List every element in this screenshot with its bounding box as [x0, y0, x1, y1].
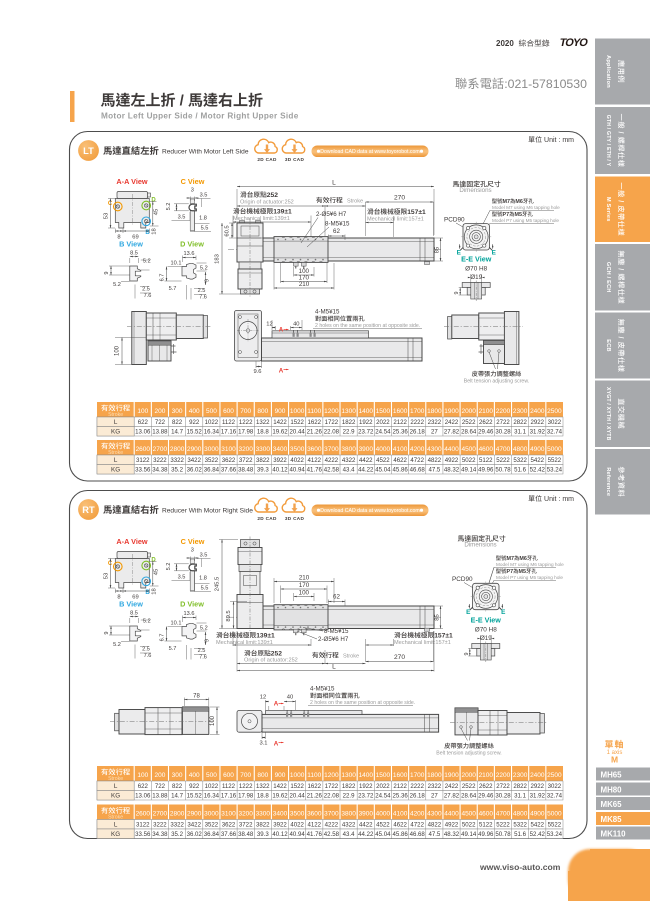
svg-text:21.26: 21.26	[307, 793, 323, 800]
svg-text:27: 27	[431, 793, 438, 800]
svg-text:33.56: 33.56	[135, 467, 151, 474]
svg-text:2422: 2422	[445, 783, 459, 790]
svg-text:/: /	[617, 334, 626, 342]
svg-text:3822: 3822	[256, 457, 270, 464]
svg-text:21.26: 21.26	[307, 429, 323, 436]
svg-text:1922: 1922	[359, 783, 373, 790]
svg-text:3: 3	[191, 188, 194, 194]
svg-text:35.2: 35.2	[171, 831, 183, 838]
svg-text:35.2: 35.2	[171, 467, 183, 474]
svg-text:1122: 1122	[222, 419, 236, 426]
svg-text:5.5: 5.5	[201, 226, 209, 232]
svg-text:5322: 5322	[513, 457, 527, 464]
svg-text:Ø70 H8: Ø70 H8	[475, 627, 497, 634]
svg-text:41.76: 41.76	[307, 831, 323, 838]
svg-text:100: 100	[137, 772, 148, 779]
svg-text:23.72: 23.72	[358, 429, 374, 436]
svg-text:7.6: 7.6	[199, 655, 207, 661]
svg-text:2900: 2900	[187, 446, 202, 453]
svg-text:1300: 1300	[341, 772, 356, 779]
svg-text:36.84: 36.84	[204, 831, 220, 838]
svg-text:183: 183	[215, 254, 221, 264]
svg-text:M: M	[611, 755, 618, 765]
svg-text:3.5: 3.5	[200, 553, 208, 559]
svg-text:45.86: 45.86	[392, 831, 408, 838]
svg-text:2922: 2922	[531, 419, 545, 426]
svg-text:2.5: 2.5	[198, 648, 206, 654]
svg-text:25.36: 25.36	[392, 793, 408, 800]
svg-text:2.5: 2.5	[142, 647, 150, 653]
svg-text:E: E	[501, 609, 506, 616]
svg-text:252: 252	[267, 192, 278, 199]
svg-text:39.3: 39.3	[257, 831, 269, 838]
svg-text:922: 922	[189, 419, 200, 426]
svg-text:Mechanical limit:157±1: Mechanical limit:157±1	[394, 640, 451, 646]
svg-text:49.96: 49.96	[478, 467, 494, 474]
svg-text:22.9: 22.9	[343, 429, 355, 436]
svg-text:40: 40	[287, 695, 293, 701]
svg-text:A-A View: A-A View	[116, 537, 148, 546]
svg-text:1822: 1822	[342, 783, 356, 790]
svg-text:1222: 1222	[239, 783, 253, 790]
svg-text:3700: 3700	[324, 446, 339, 453]
svg-text:38.48: 38.48	[238, 831, 254, 838]
svg-text:5522: 5522	[548, 822, 562, 829]
svg-text:4022: 4022	[290, 457, 304, 464]
svg-text:36.02: 36.02	[187, 467, 203, 474]
svg-text:270: 270	[394, 654, 405, 661]
svg-text:3400: 3400	[273, 446, 288, 453]
svg-text:3300: 3300	[256, 446, 271, 453]
svg-text:3522: 3522	[205, 457, 219, 464]
svg-text:51.6: 51.6	[514, 831, 526, 838]
svg-text:Model M7 using M6 tapping hole: Model M7 using M6 tapping hole	[492, 205, 560, 210]
svg-text:2400: 2400	[530, 408, 545, 415]
svg-text:1600: 1600	[393, 408, 408, 415]
svg-text:Dimensions: Dimensions	[464, 542, 496, 549]
svg-text:4122: 4122	[308, 822, 322, 829]
svg-text:3100: 3100	[221, 811, 236, 818]
svg-text:3522: 3522	[205, 822, 219, 829]
svg-text:4500: 4500	[461, 811, 476, 818]
svg-text:TOYO: TOYO	[558, 37, 589, 49]
svg-text:700: 700	[240, 408, 251, 415]
svg-text:17.98: 17.98	[238, 429, 254, 436]
svg-text:53: 53	[104, 573, 110, 579]
svg-text:2500: 2500	[547, 772, 562, 779]
svg-text:5422: 5422	[531, 822, 545, 829]
svg-text:18: 18	[152, 588, 158, 594]
svg-text:31.1: 31.1	[514, 793, 526, 800]
svg-text:3200: 3200	[238, 811, 253, 818]
svg-text:4922: 4922	[445, 457, 459, 464]
svg-text:3.5: 3.5	[200, 193, 208, 199]
svg-text:13.06: 13.06	[135, 429, 151, 436]
svg-text:26.18: 26.18	[410, 793, 426, 800]
svg-text:1222: 1222	[239, 419, 253, 426]
svg-text:3322: 3322	[170, 822, 184, 829]
svg-text:19.62: 19.62	[272, 429, 288, 436]
svg-text:23.72: 23.72	[358, 793, 374, 800]
svg-text:7.6: 7.6	[199, 295, 207, 301]
svg-text:1400: 1400	[359, 772, 374, 779]
svg-text:2722: 2722	[496, 419, 510, 426]
svg-text:/: /	[617, 266, 626, 274]
svg-text:1900: 1900	[444, 772, 459, 779]
svg-text:5000: 5000	[547, 811, 562, 818]
svg-text:1.8: 1.8	[199, 216, 207, 222]
svg-text:170: 170	[299, 582, 310, 589]
svg-text:/: /	[176, 93, 189, 110]
svg-text:45.86: 45.86	[392, 467, 408, 474]
svg-text:2322: 2322	[428, 419, 442, 426]
svg-text:49.14: 49.14	[461, 467, 477, 474]
svg-text:47.5: 47.5	[428, 467, 440, 474]
svg-text:3422: 3422	[187, 822, 201, 829]
svg-text:4122: 4122	[308, 457, 322, 464]
svg-text:4922: 4922	[445, 822, 459, 829]
svg-text:3622: 3622	[222, 457, 236, 464]
svg-text:7.6: 7.6	[144, 293, 152, 299]
svg-text:2000: 2000	[461, 772, 476, 779]
svg-text:18: 18	[152, 228, 158, 234]
svg-text:D View: D View	[180, 240, 204, 249]
svg-text:Reducer With Motor Right Side: Reducer With Motor Right Side	[162, 508, 253, 515]
svg-text:3100: 3100	[221, 446, 236, 453]
svg-text:4-M5¥15: 4-M5¥15	[310, 686, 335, 693]
svg-text:Ø19: Ø19	[480, 635, 492, 642]
svg-text:20.44: 20.44	[289, 793, 305, 800]
svg-text:9.6: 9.6	[253, 369, 261, 375]
svg-text:2922: 2922	[531, 783, 545, 790]
svg-text:C View: C View	[181, 537, 205, 546]
svg-text:1022: 1022	[205, 783, 219, 790]
svg-text:2100: 2100	[479, 408, 494, 415]
svg-text:4822: 4822	[428, 457, 442, 464]
svg-text:45: 45	[154, 209, 160, 215]
svg-text:48.32: 48.32	[444, 831, 460, 838]
svg-text:Download CAD data at www.toyor: Download CAD data at www.toyorobot.com	[320, 149, 419, 155]
svg-text:3722: 3722	[239, 822, 253, 829]
svg-text:2.5: 2.5	[198, 288, 206, 294]
svg-text:3: 3	[191, 548, 194, 554]
svg-text:MK85: MK85	[601, 815, 623, 824]
svg-text:2422: 2422	[445, 419, 459, 426]
svg-text:2020: 2020	[496, 39, 514, 48]
svg-text:3422: 3422	[187, 457, 201, 464]
svg-text:4222: 4222	[325, 457, 339, 464]
svg-text:2500: 2500	[547, 408, 562, 415]
svg-text:100: 100	[137, 408, 148, 415]
svg-text:Model P7 using M5 tapping hole: Model P7 using M5 tapping hole	[492, 218, 559, 223]
svg-text:5.2: 5.2	[166, 563, 172, 571]
svg-text:31.92: 31.92	[530, 429, 546, 436]
svg-text:3D CAD: 3D CAD	[285, 516, 305, 521]
svg-text:2000: 2000	[461, 408, 476, 415]
svg-text:1522: 1522	[290, 783, 304, 790]
svg-text::021-57810530: :021-57810530	[504, 77, 587, 91]
svg-text:1000: 1000	[290, 772, 305, 779]
svg-text:34.38: 34.38	[152, 467, 168, 474]
svg-text:1500: 1500	[376, 408, 391, 415]
svg-text:4722: 4722	[410, 457, 424, 464]
svg-text:700: 700	[240, 772, 251, 779]
svg-text:7.6: 7.6	[144, 653, 152, 659]
svg-text:800: 800	[257, 772, 268, 779]
svg-text:9: 9	[104, 631, 110, 634]
svg-text:5022: 5022	[462, 822, 476, 829]
svg-text:A: A	[279, 368, 284, 375]
svg-text:5.7: 5.7	[169, 646, 177, 652]
svg-text:89.5: 89.5	[226, 610, 232, 621]
svg-text:1800: 1800	[427, 772, 442, 779]
svg-text:50.78: 50.78	[495, 467, 511, 474]
svg-text:Application: Application	[605, 55, 611, 88]
svg-text:2D CAD: 2D CAD	[257, 516, 277, 521]
svg-text:822: 822	[172, 419, 183, 426]
svg-text:210: 210	[299, 281, 310, 288]
svg-text:300: 300	[172, 772, 183, 779]
svg-text:722: 722	[155, 783, 166, 790]
svg-text:3600: 3600	[307, 446, 322, 453]
svg-text:3222: 3222	[153, 822, 167, 829]
svg-text:4900: 4900	[530, 446, 545, 453]
svg-text:2722: 2722	[496, 783, 510, 790]
svg-text:Ø19: Ø19	[470, 274, 482, 281]
svg-text:27.82: 27.82	[444, 429, 460, 436]
svg-text:1600: 1600	[393, 772, 408, 779]
svg-text:9: 9	[454, 292, 460, 295]
svg-text:5322: 5322	[513, 822, 527, 829]
svg-text:1100: 1100	[307, 408, 321, 415]
svg-text:8-M5¥15: 8-M5¥15	[324, 628, 349, 635]
svg-text:B View: B View	[119, 600, 143, 609]
svg-text:4222: 4222	[325, 822, 339, 829]
svg-text:3.5: 3.5	[178, 215, 186, 221]
svg-text:46.68: 46.68	[410, 831, 426, 838]
svg-text:PCD90: PCD90	[444, 217, 465, 224]
svg-text:3400: 3400	[273, 811, 288, 818]
svg-text:4622: 4622	[393, 457, 407, 464]
svg-text:3200: 3200	[238, 446, 253, 453]
svg-text:40.94: 40.94	[289, 831, 305, 838]
svg-text:42.58: 42.58	[324, 467, 340, 474]
svg-text:L: L	[114, 783, 118, 790]
svg-text:4000: 4000	[376, 811, 391, 818]
svg-text:3922: 3922	[273, 822, 287, 829]
svg-text:1022: 1022	[205, 419, 219, 426]
svg-text:3500: 3500	[290, 446, 305, 453]
svg-text:4000: 4000	[376, 446, 391, 453]
svg-text:400: 400	[189, 772, 200, 779]
svg-text:LT: LT	[83, 146, 94, 156]
svg-text:3D CAD: 3D CAD	[285, 157, 305, 162]
svg-text:12: 12	[266, 322, 272, 328]
svg-text:2022: 2022	[376, 419, 390, 426]
svg-text:L: L	[114, 822, 118, 829]
svg-text:MH65: MH65	[601, 771, 623, 780]
svg-text:3022: 3022	[548, 783, 562, 790]
svg-text:3600: 3600	[307, 811, 322, 818]
svg-text:900: 900	[275, 408, 286, 415]
svg-text:2D CAD: 2D CAD	[257, 157, 277, 162]
svg-text:5.5: 5.5	[201, 586, 209, 592]
svg-text:27: 27	[431, 429, 438, 436]
svg-text:3222: 3222	[153, 457, 167, 464]
svg-text:Mechanical limit:139±1: Mechanical limit:139±1	[233, 216, 290, 222]
svg-text:1300: 1300	[341, 408, 356, 415]
svg-text:4322: 4322	[342, 457, 356, 464]
svg-text:2122: 2122	[393, 419, 407, 426]
svg-text:5.2: 5.2	[166, 203, 172, 211]
svg-text:D: D	[151, 198, 156, 204]
svg-text:252: 252	[271, 651, 282, 658]
svg-text:2822: 2822	[513, 419, 527, 426]
svg-text:A: A	[274, 701, 279, 708]
svg-text:300: 300	[172, 408, 183, 415]
svg-text:RT: RT	[82, 505, 95, 515]
svg-text:KG: KG	[111, 467, 120, 474]
svg-text:36.02: 36.02	[187, 831, 203, 838]
svg-text:16.34: 16.34	[204, 793, 220, 800]
svg-text:32.74: 32.74	[547, 793, 563, 800]
svg-text:5222: 5222	[496, 822, 510, 829]
svg-text:4522: 4522	[376, 457, 390, 464]
svg-text:6.7: 6.7	[160, 274, 166, 282]
svg-text:1100: 1100	[307, 772, 321, 779]
svg-text:2700: 2700	[153, 811, 168, 818]
svg-text:/: /	[617, 129, 626, 137]
svg-text:19.62: 19.62	[272, 793, 288, 800]
svg-text:900: 900	[275, 772, 286, 779]
svg-text:MK110: MK110	[601, 830, 627, 839]
svg-text:3900: 3900	[359, 446, 374, 453]
svg-text:17.98: 17.98	[238, 793, 254, 800]
svg-text:3922: 3922	[273, 457, 287, 464]
svg-text:15.52: 15.52	[187, 793, 203, 800]
svg-text:51.6: 51.6	[514, 467, 526, 474]
svg-text:48.32: 48.32	[444, 467, 460, 474]
svg-text:A-A View: A-A View	[116, 177, 148, 186]
svg-text:100: 100	[114, 345, 120, 356]
svg-text:2800: 2800	[170, 446, 185, 453]
svg-text:3800: 3800	[341, 446, 356, 453]
svg-text:600: 600	[223, 772, 234, 779]
svg-text:5.2: 5.2	[200, 266, 208, 272]
svg-text:4600: 4600	[479, 446, 494, 453]
svg-text:2522: 2522	[462, 419, 476, 426]
svg-text:9: 9	[104, 271, 110, 274]
svg-text:53.24: 53.24	[547, 831, 563, 838]
svg-text:3.5: 3.5	[178, 575, 186, 581]
svg-text:4100: 4100	[393, 811, 408, 818]
svg-text:4422: 4422	[359, 457, 373, 464]
svg-text:15.52: 15.52	[187, 429, 203, 436]
svg-text:Ø70 H8: Ø70 H8	[465, 266, 487, 273]
svg-text:500: 500	[206, 772, 217, 779]
svg-text:5022: 5022	[462, 457, 476, 464]
svg-text:2.5: 2.5	[142, 287, 150, 293]
svg-text:2622: 2622	[479, 783, 493, 790]
svg-text:1122: 1122	[222, 783, 236, 790]
svg-text:2622: 2622	[479, 419, 493, 426]
svg-text:30.28: 30.28	[495, 793, 511, 800]
svg-text:4800: 4800	[513, 811, 528, 818]
svg-text:722: 722	[155, 419, 166, 426]
svg-text:40: 40	[293, 322, 299, 328]
svg-text:13.88: 13.88	[152, 793, 168, 800]
svg-text:Unit : mm: Unit : mm	[542, 137, 574, 144]
svg-text:E-E View: E-E View	[471, 616, 502, 625]
svg-text:4422: 4422	[359, 822, 373, 829]
svg-text:1200: 1200	[324, 772, 339, 779]
svg-text:52.42: 52.42	[530, 831, 546, 838]
svg-text:22.9: 22.9	[343, 793, 355, 800]
svg-text:270: 270	[394, 195, 405, 202]
svg-text:4700: 4700	[496, 811, 511, 818]
svg-text:26.18: 26.18	[410, 429, 426, 436]
svg-text:5122: 5122	[479, 457, 493, 464]
svg-text:2300: 2300	[513, 408, 528, 415]
svg-text:GCH / ECH: GCH / ECH	[605, 262, 611, 293]
svg-text:28.64: 28.64	[461, 429, 477, 436]
svg-text:PCD90: PCD90	[452, 576, 473, 583]
svg-text:17.16: 17.16	[221, 793, 237, 800]
svg-text:210: 210	[299, 575, 310, 582]
svg-text:GTH / GTY / ETH / Y: GTH / GTY / ETH / Y	[605, 115, 611, 167]
svg-text:1500: 1500	[376, 772, 391, 779]
svg-text:40.12: 40.12	[272, 467, 288, 474]
svg-text:157±1: 157±1	[434, 633, 453, 640]
svg-text:2522: 2522	[462, 783, 476, 790]
svg-text:Motor Left Upper Side / Motor: Motor Left Upper Side / Motor Right Uppe…	[101, 112, 299, 121]
svg-text:9: 9	[464, 653, 470, 656]
svg-text:1322: 1322	[256, 419, 270, 426]
svg-text:10.1: 10.1	[171, 261, 182, 267]
svg-text:D: D	[151, 558, 156, 564]
svg-text:L: L	[114, 457, 118, 464]
svg-text:31.1: 31.1	[514, 429, 526, 436]
svg-text:3000: 3000	[204, 446, 219, 453]
svg-text:KG: KG	[111, 793, 120, 800]
svg-text:5.7: 5.7	[169, 286, 177, 292]
svg-text:24.54: 24.54	[375, 793, 391, 800]
svg-text:1622: 1622	[308, 419, 322, 426]
svg-text:1322: 1322	[256, 783, 270, 790]
svg-text:4622: 4622	[393, 822, 407, 829]
svg-text:1722: 1722	[325, 419, 339, 426]
svg-text:2322: 2322	[428, 783, 442, 790]
svg-text:46.68: 46.68	[410, 467, 426, 474]
svg-text:4700: 4700	[496, 446, 511, 453]
svg-text:3500: 3500	[290, 811, 305, 818]
svg-text:2800: 2800	[170, 811, 185, 818]
svg-text:3122: 3122	[136, 822, 150, 829]
svg-text:4300: 4300	[427, 811, 442, 818]
svg-text:3622: 3622	[222, 822, 236, 829]
svg-text:27.82: 27.82	[444, 793, 460, 800]
svg-text:8-M5¥15: 8-M5¥15	[325, 221, 350, 228]
svg-text:4200: 4200	[410, 446, 425, 453]
svg-text:139±1: 139±1	[256, 633, 275, 640]
svg-text:4-M5¥15: 4-M5¥15	[315, 309, 340, 316]
svg-text:37.66: 37.66	[221, 831, 237, 838]
svg-text:Origin of actuator:252: Origin of actuator:252	[244, 658, 298, 664]
svg-text:Reducer With Motor Left Side: Reducer With Motor Left Side	[162, 149, 249, 156]
svg-text:2700: 2700	[153, 446, 168, 453]
svg-text:600: 600	[223, 408, 234, 415]
svg-text:39.3: 39.3	[257, 467, 269, 474]
